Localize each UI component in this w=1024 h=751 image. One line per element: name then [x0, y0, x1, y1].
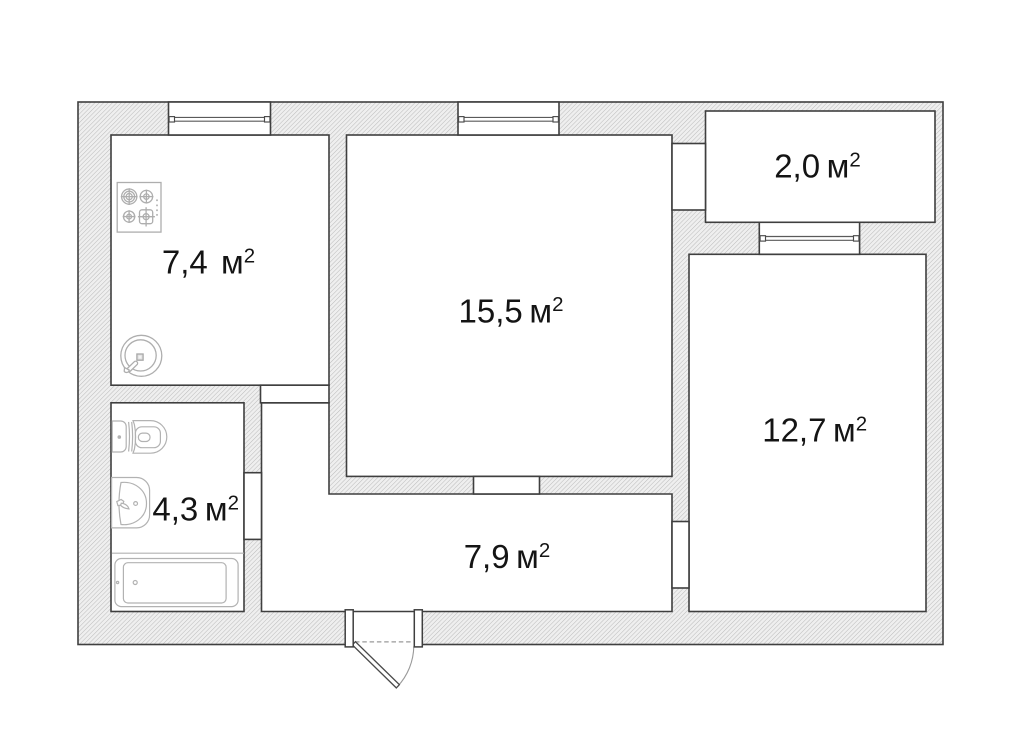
svg-text:4,3 м2: 4,3 м2	[152, 491, 239, 528]
svg-text:7,9 м2: 7,9 м2	[464, 538, 551, 575]
svg-text:7,4 м2: 7,4 м2	[162, 244, 255, 281]
svg-text:15,5 м2: 15,5 м2	[459, 292, 564, 329]
svg-text:12,7 м2: 12,7 м2	[762, 412, 867, 449]
svg-text:2,0 м2: 2,0 м2	[774, 148, 861, 185]
